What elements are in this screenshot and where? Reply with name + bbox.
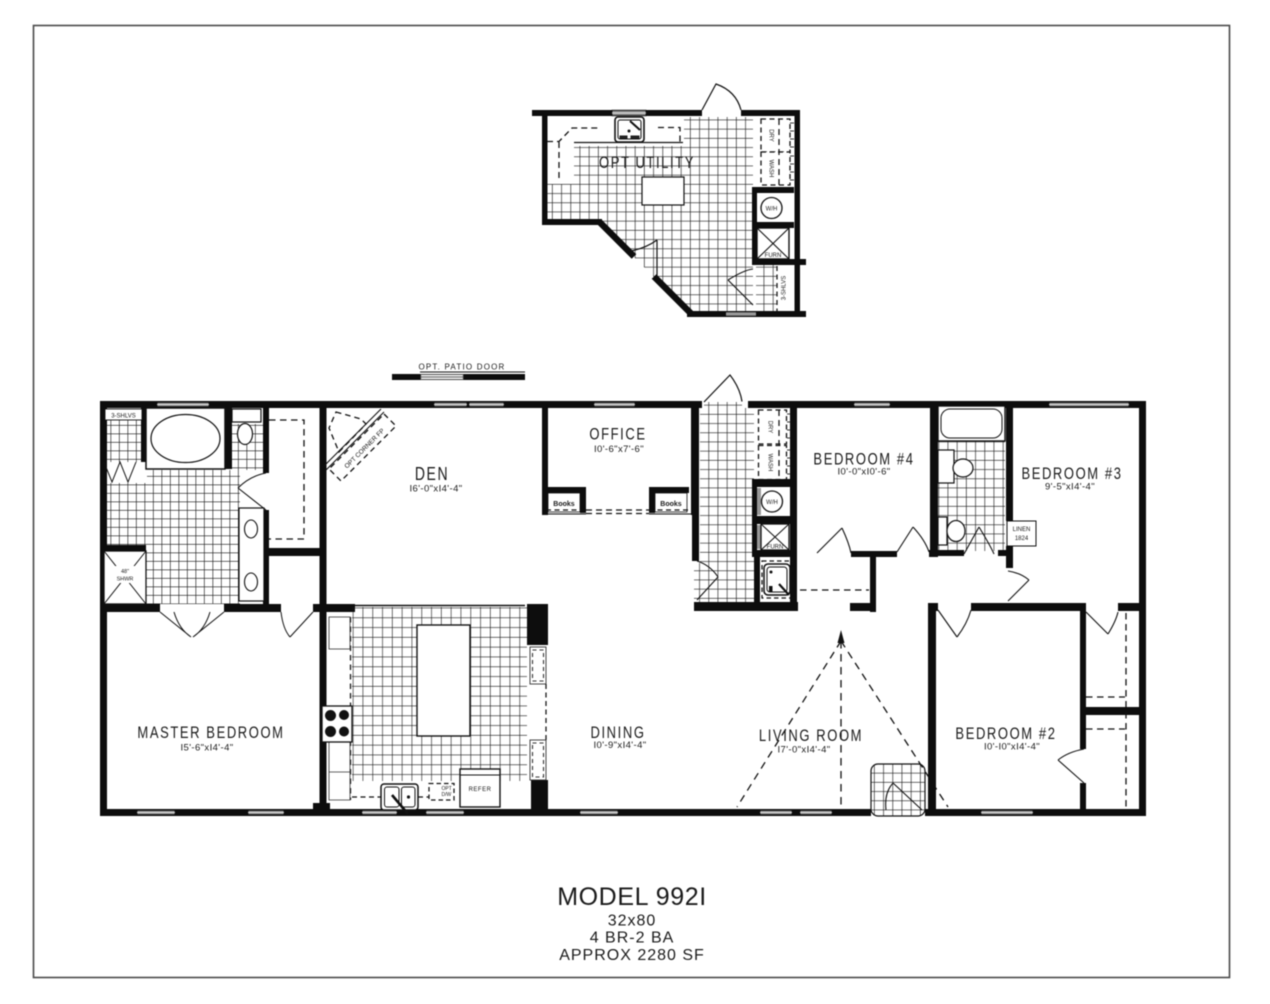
svg-text:I0'-9"xI4'-4": I0'-9"xI4'-4" [593, 740, 646, 751]
svg-text:FURN: FURN [767, 545, 784, 551]
svg-text:OFFICE: OFFICE [589, 425, 646, 444]
svg-text:9'-5"xI4'-4": 9'-5"xI4'-4" [1045, 482, 1095, 493]
svg-text:OPT. PATIO DOOR: OPT. PATIO DOOR [418, 363, 505, 372]
svg-text:MODEL 992I: MODEL 992I [557, 883, 707, 911]
svg-text:3-SHLVS: 3-SHLVS [782, 276, 788, 301]
svg-text:32x80: 32x80 [608, 913, 657, 930]
svg-text:I0'-6"x7'-6": I0'-6"x7'-6" [594, 444, 644, 455]
svg-text:WASH: WASH [767, 454, 773, 472]
svg-text:3-SHLVS: 3-SHLVS [111, 413, 136, 419]
svg-text:FURN: FURN [765, 253, 782, 259]
svg-text:D/W: D/W [442, 792, 452, 798]
svg-text:SHWR: SHWR [117, 577, 134, 583]
svg-text:Books: Books [553, 501, 575, 508]
svg-text:OPT UTILITY: OPT UTILITY [599, 153, 695, 172]
svg-text:I0'-I0"xI4'-4": I0'-I0"xI4'-4" [984, 742, 1040, 753]
svg-text:DEN: DEN [415, 464, 449, 484]
svg-text:REFER: REFER [469, 787, 492, 793]
svg-text:LIVING ROOM: LIVING ROOM [759, 726, 863, 745]
svg-text:WASH: WASH [768, 160, 774, 178]
svg-text:MASTER BEDROOM: MASTER BEDROOM [137, 723, 284, 742]
svg-text:1824: 1824 [1015, 536, 1029, 542]
svg-text:I7'-0"xI4'-4": I7'-0"xI4'-4" [777, 745, 830, 756]
svg-text:48": 48" [121, 569, 129, 575]
svg-text:DRY: DRY [767, 421, 773, 434]
svg-text:I5'-6"xI4'-4": I5'-6"xI4'-4" [180, 743, 233, 754]
svg-text:Books: Books [660, 501, 682, 508]
svg-text:4 BR-2 BA: 4 BR-2 BA [590, 930, 675, 947]
svg-text:I0'-0"xI0'-6": I0'-0"xI0'-6" [837, 467, 890, 478]
svg-text:W/H: W/H [766, 500, 778, 506]
svg-text:I6'-0"xI4'-4": I6'-0"xI4'-4" [409, 484, 462, 495]
svg-text:DRY: DRY [768, 129, 774, 142]
svg-text:LINEN: LINEN [1013, 527, 1031, 533]
svg-text:APPROX 2280 SF: APPROX 2280 SF [559, 947, 705, 964]
svg-text:W/H: W/H [766, 206, 778, 212]
